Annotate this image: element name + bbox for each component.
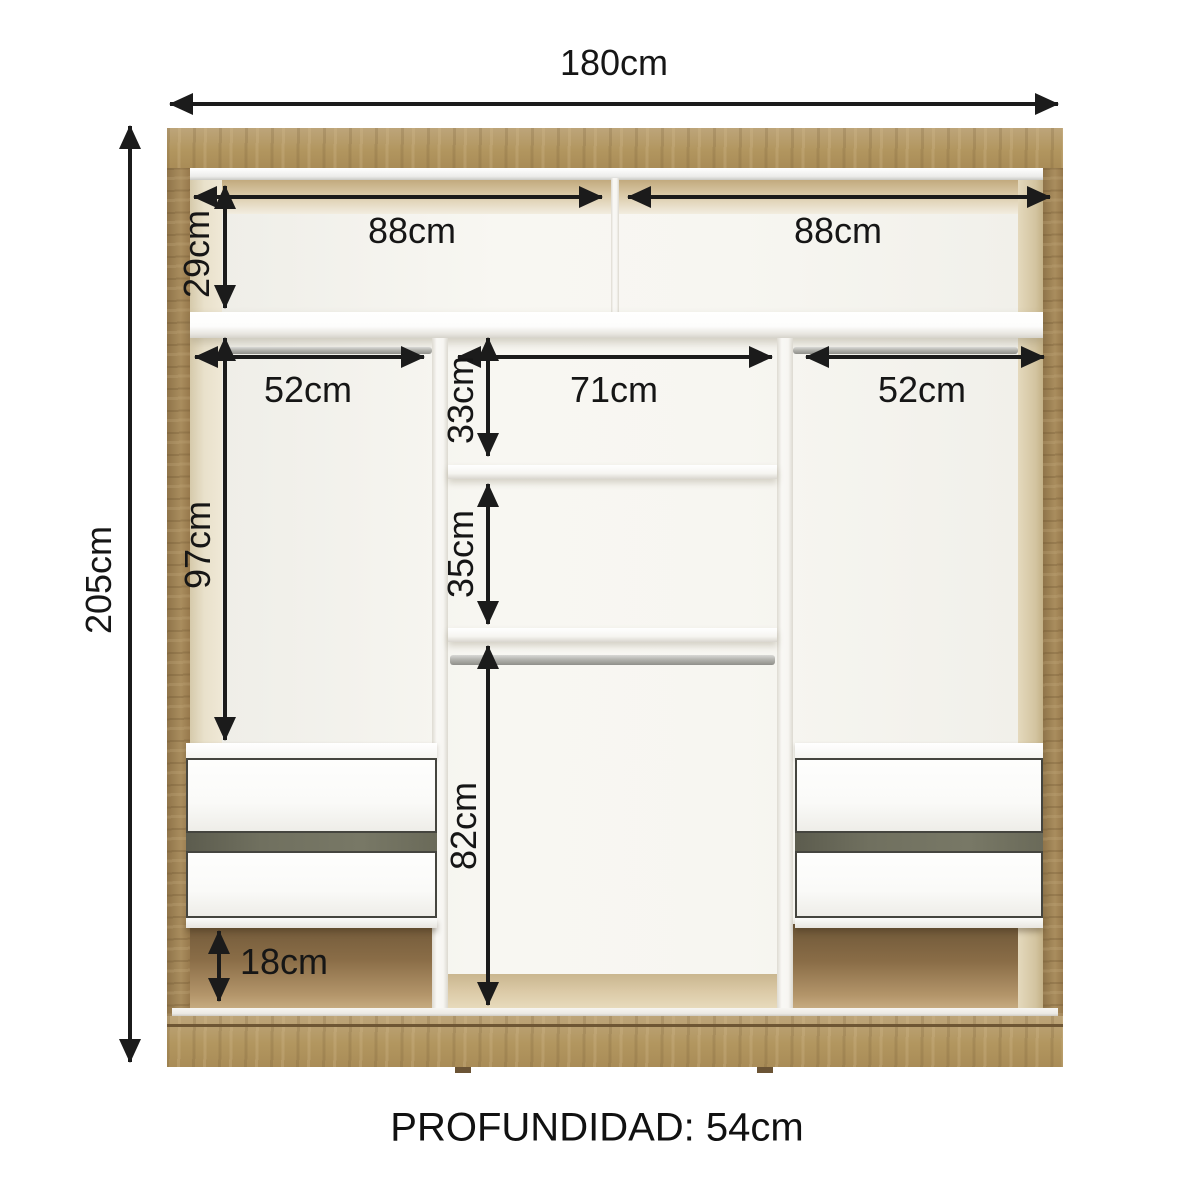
dim-total-height-arrow	[128, 126, 132, 1062]
dim-center-hanging-arrow	[486, 646, 490, 1005]
dim-center-width-label: 71cm	[570, 369, 658, 411]
dim-top-shelf-height-arrow	[223, 186, 227, 308]
dim-side-hanging-arrow	[223, 338, 227, 740]
right-drawer-2	[795, 851, 1043, 918]
dim-right-rod-width-label: 52cm	[878, 369, 966, 411]
dim-top-shelf-height-label: 29cm	[176, 210, 218, 298]
depth-label: PROFUNDIDAD: 54cm	[390, 1106, 803, 1151]
left-drawer-gap	[186, 833, 437, 851]
dim-top-shelf-right-label: 88cm	[794, 210, 882, 252]
wardrobe-dimension-diagram: 180cm 205cm 88cm 88cm 29cm 52cm 71cm 52c…	[0, 0, 1200, 1200]
right-drawer-gap	[795, 833, 1043, 851]
left-drawer-1	[186, 758, 437, 833]
dim-center-upper-arrow	[486, 338, 490, 456]
top-shelf	[190, 312, 1043, 338]
dim-center-upper-label: 33cm	[440, 356, 482, 444]
center-upper-shelf	[448, 465, 777, 479]
top-center-divider	[611, 178, 619, 314]
dim-center-width-arrow	[458, 355, 772, 359]
toe-kick-strip	[172, 1008, 1058, 1016]
right-floor	[793, 924, 1018, 1008]
left-drawer-2	[186, 851, 437, 918]
dim-center-hanging-label: 82cm	[443, 782, 485, 870]
wardrobe-top-panel	[167, 128, 1063, 168]
dim-total-width-label: 180cm	[560, 42, 668, 84]
wardrobe-right-side-panel	[1043, 168, 1063, 1016]
dim-top-shelf-right-arrow	[628, 195, 1050, 199]
dim-top-shelf-left-label: 88cm	[368, 210, 456, 252]
dim-side-hanging-label: 97cm	[177, 501, 219, 589]
dim-center-middle-arrow	[486, 484, 490, 624]
left-drawer-unit-base	[186, 918, 437, 928]
dim-top-shelf-left-arrow	[194, 195, 602, 199]
right-drawer-unit-base	[795, 918, 1043, 928]
center-right-divider	[777, 338, 793, 1008]
base-groove	[167, 1024, 1063, 1027]
dim-base-clearance-arrow	[217, 931, 221, 1001]
right-drawer-1	[795, 758, 1043, 833]
dim-base-clearance-label: 18cm	[240, 941, 328, 983]
foot-right	[757, 1067, 773, 1073]
left-drawer-unit-top	[186, 743, 437, 758]
dim-total-height-label: 205cm	[78, 526, 120, 634]
dim-left-rod-width-label: 52cm	[264, 369, 352, 411]
dim-center-middle-label: 35cm	[440, 510, 482, 598]
dim-right-rod-width-arrow	[806, 355, 1044, 359]
center-middle-shelf	[448, 628, 777, 642]
right-drawer-unit-top	[795, 743, 1043, 758]
dim-total-width-arrow	[170, 102, 1058, 106]
foot-left	[455, 1067, 471, 1073]
